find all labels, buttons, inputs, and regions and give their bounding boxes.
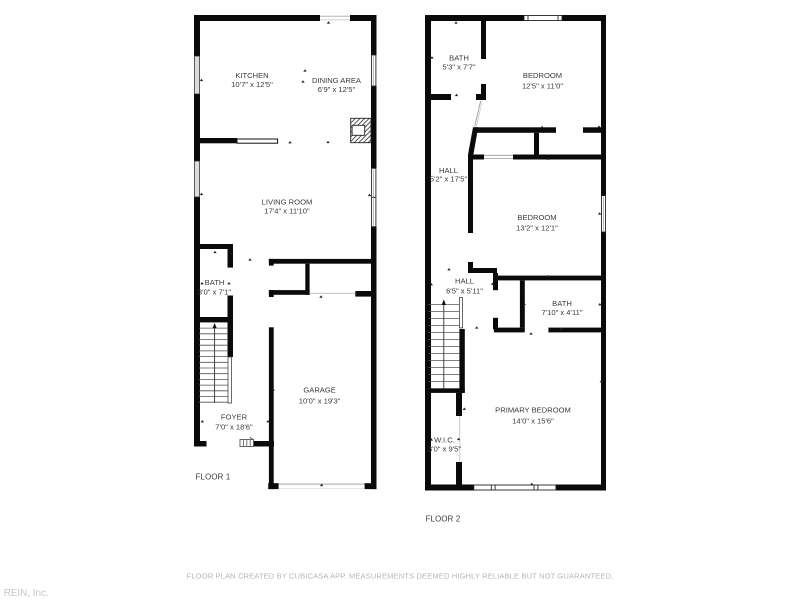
svg-text:12'5" x 11'0": 12'5" x 11'0" [522, 82, 563, 91]
svg-text:17'4" x 11'10": 17'4" x 11'10" [264, 207, 310, 216]
svg-text:BATH: BATH [449, 54, 469, 63]
svg-text:10'0" x 19'3": 10'0" x 19'3" [299, 397, 341, 406]
svg-text:7'0" x 18'6": 7'0" x 18'6" [215, 423, 253, 432]
svg-text:3'0" x 9'5": 3'0" x 9'5" [428, 445, 462, 454]
svg-text:FLOOR PLAN CREATED BY CUBICASA: FLOOR PLAN CREATED BY CUBICASA APP. MEAS… [187, 571, 614, 580]
svg-text:FLOOR 1: FLOOR 1 [196, 472, 231, 481]
svg-text:HALL: HALL [455, 277, 474, 286]
svg-text:7'10" x 4'11": 7'10" x 4'11" [541, 308, 582, 317]
svg-text:W.I.C.: W.I.C. [434, 436, 455, 445]
svg-text:13'2" x 12'1": 13'2" x 12'1" [516, 224, 558, 233]
svg-text:14'0" x 15'6": 14'0" x 15'6" [512, 417, 554, 426]
svg-text:BATH: BATH [552, 299, 572, 308]
svg-text:5'2" x 17'5": 5'2" x 17'5" [430, 175, 468, 184]
svg-text:FLOOR 2: FLOOR 2 [426, 514, 461, 523]
svg-text:LIVING ROOM: LIVING ROOM [262, 198, 313, 207]
svg-text:PRIMARY BEDROOM: PRIMARY BEDROOM [495, 406, 571, 415]
svg-text:10'7" x 12'5": 10'7" x 12'5" [231, 80, 273, 89]
svg-text:BATH: BATH [205, 278, 225, 287]
svg-text:REIN, Inc.: REIN, Inc. [4, 588, 49, 599]
svg-text:BEDROOM: BEDROOM [523, 71, 562, 80]
svg-text:BEDROOM: BEDROOM [517, 213, 556, 222]
svg-text:DINING AREA: DINING AREA [312, 76, 362, 85]
svg-text:3'0" x 7'1": 3'0" x 7'1" [198, 288, 232, 297]
svg-text:FOYER: FOYER [221, 413, 248, 422]
svg-text:GARAGE: GARAGE [303, 386, 336, 395]
svg-text:6'5" x 5'11": 6'5" x 5'11" [446, 287, 483, 296]
svg-text:6'9" x 12'5": 6'9" x 12'5" [318, 85, 356, 94]
svg-text:KITCHEN: KITCHEN [235, 71, 268, 80]
svg-text:5'3" x 7'7": 5'3" x 7'7" [442, 63, 476, 72]
